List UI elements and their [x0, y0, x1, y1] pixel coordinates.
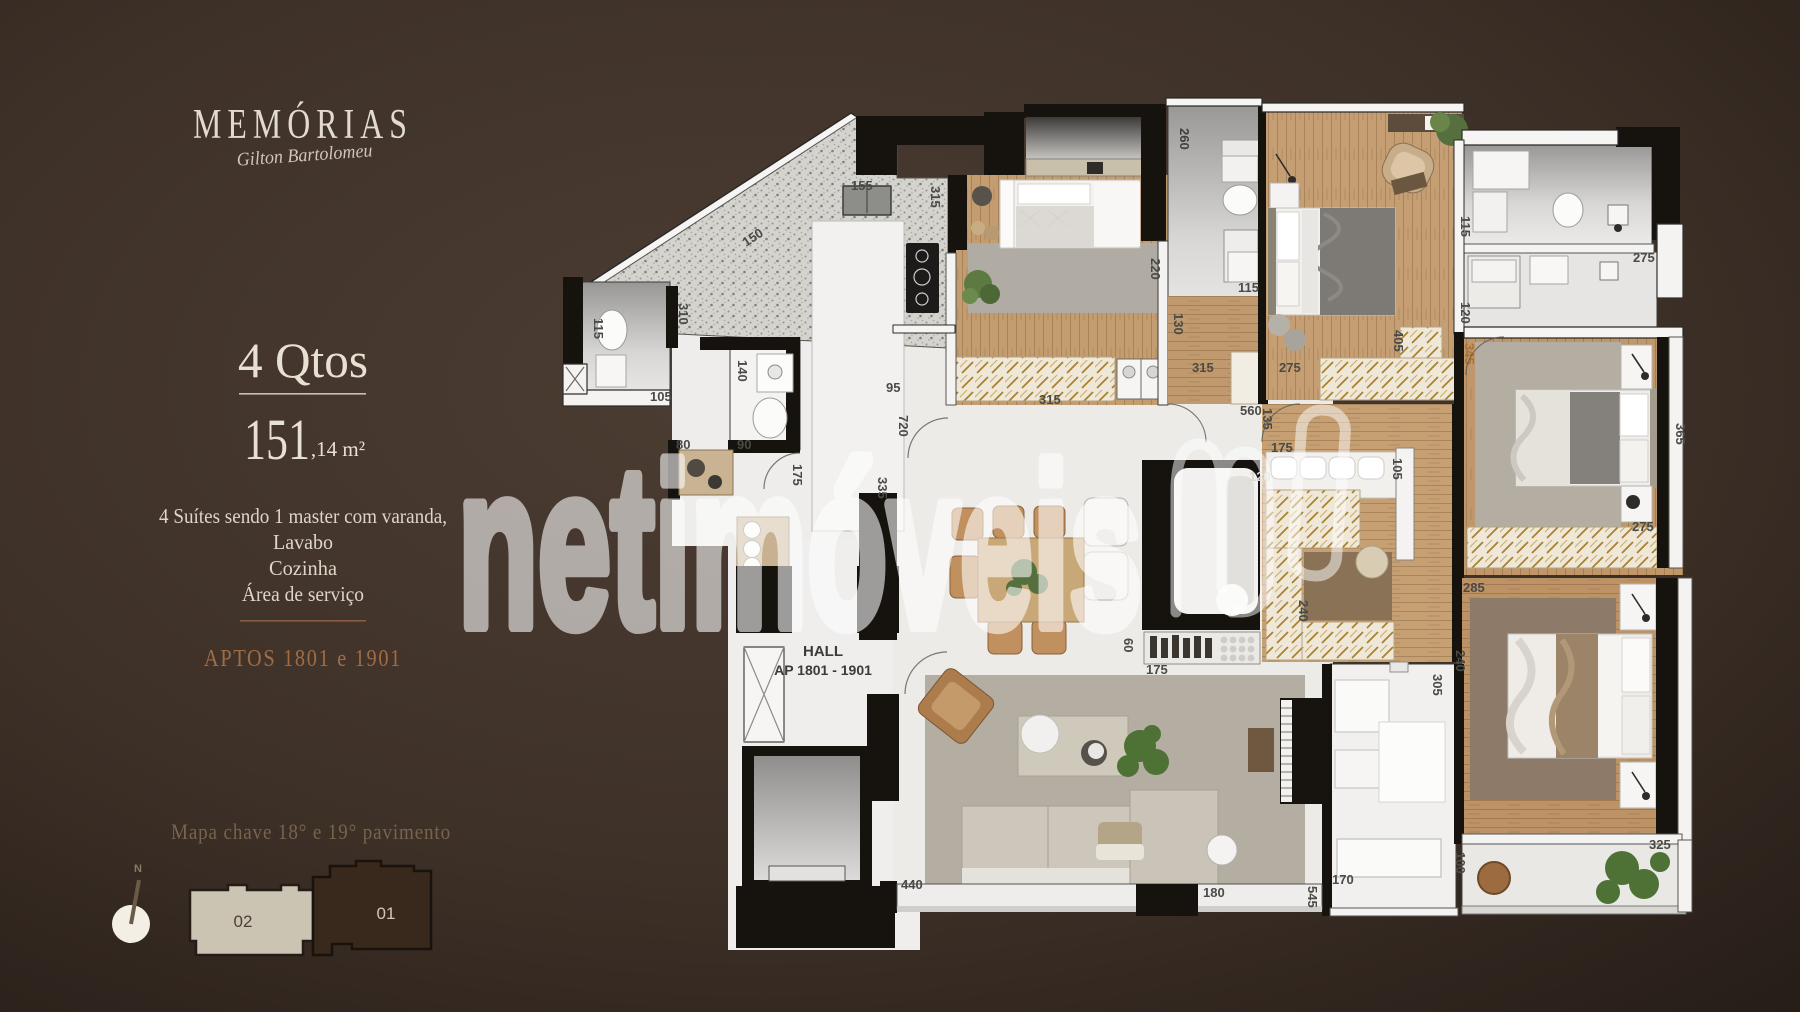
svg-text:315: 315 [1039, 392, 1061, 407]
svg-text:105: 105 [650, 389, 672, 404]
svg-text:MEMÓRIAS: MEMÓRIAS [193, 101, 413, 148]
svg-text:4 Suítes sendo 1 master com va: 4 Suítes sendo 1 master com varanda, [159, 504, 447, 528]
svg-text:560: 560 [1240, 403, 1262, 418]
svg-text:140: 140 [735, 360, 750, 382]
svg-text:Mapa chave 18° e 19° pavimento: Mapa chave 18° e 19° pavimento [171, 819, 451, 844]
svg-text:275: 275 [1279, 360, 1301, 375]
svg-text:01: 01 [377, 904, 396, 923]
svg-text:545: 545 [1305, 886, 1320, 908]
svg-text:175: 175 [1146, 662, 1168, 677]
svg-text:Área de serviço: Área de serviço [242, 582, 364, 606]
svg-text:130: 130 [1171, 313, 1186, 335]
svg-text:4 Qtos: 4 Qtos [238, 332, 368, 388]
svg-text:95: 95 [886, 380, 900, 395]
svg-text:170: 170 [1332, 872, 1354, 887]
svg-text:180: 180 [1203, 885, 1225, 900]
svg-text:netimóveis: netimóveis [458, 418, 1142, 675]
svg-text:240: 240 [1296, 600, 1311, 622]
svg-text:N: N [134, 863, 142, 875]
svg-text:100: 100 [1453, 852, 1468, 874]
svg-text:,14 m²: ,14 m² [311, 437, 365, 461]
svg-text:APTOS 1801 e 1901: APTOS 1801 e 1901 [204, 646, 402, 672]
svg-text:Lavabo: Lavabo [273, 530, 333, 554]
svg-text:310: 310 [676, 303, 691, 325]
svg-text:405: 405 [1391, 330, 1406, 352]
svg-text:Cozinha: Cozinha [269, 556, 338, 580]
svg-text:151: 151 [244, 407, 310, 472]
svg-text:305: 305 [1430, 674, 1445, 696]
svg-text:260: 260 [1177, 128, 1192, 150]
svg-text:175: 175 [1271, 440, 1293, 455]
svg-text:240: 240 [1453, 650, 1468, 672]
svg-text:345: 345 [1462, 343, 1477, 365]
svg-text:365: 365 [1673, 423, 1688, 445]
svg-text:115: 115 [1458, 216, 1473, 237]
svg-text:315: 315 [928, 186, 943, 208]
svg-text:275: 275 [1632, 519, 1654, 534]
svg-text:325: 325 [1649, 837, 1671, 852]
svg-text:105: 105 [1390, 458, 1405, 480]
svg-text:440: 440 [901, 877, 923, 892]
svg-text:220: 220 [1148, 258, 1163, 280]
svg-text:115: 115 [1238, 280, 1259, 295]
svg-text:315: 315 [1192, 360, 1214, 375]
svg-text:120: 120 [1458, 302, 1473, 324]
svg-text:02: 02 [234, 912, 253, 931]
svg-text:135: 135 [1260, 408, 1275, 430]
svg-text:285: 285 [1463, 580, 1485, 595]
svg-text:275: 275 [1633, 250, 1655, 265]
svg-text:155: 155 [851, 178, 873, 193]
svg-text:115: 115 [591, 318, 606, 339]
